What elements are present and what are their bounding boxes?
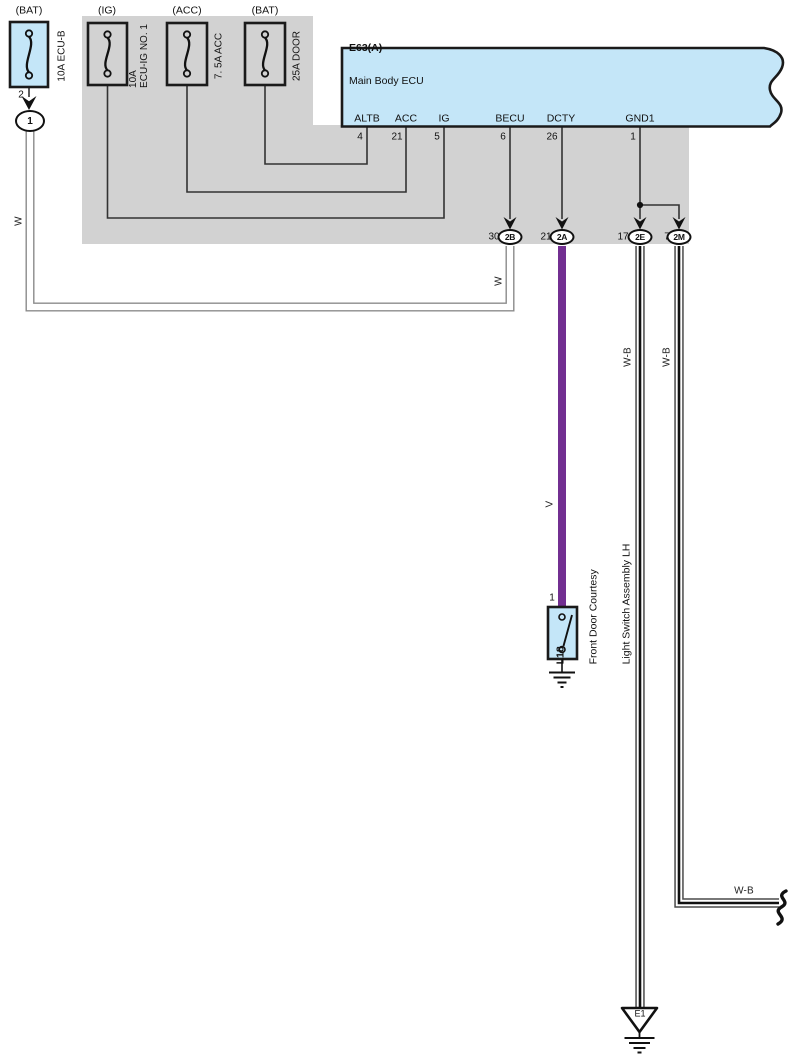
ecu-pin-gnd1: GND1 [625,114,654,125]
ecu-pin-becu-num: 6 [500,132,506,143]
ecu-pin-acc: ACC [395,114,417,125]
fuse-acc [167,23,207,85]
wire-wb-bottom-label: W-B [734,886,754,897]
fuse-ecu-b-source-label: (BAT) [16,6,43,17]
fuse-ecu-ig [88,23,127,85]
ecu-pin-ig-num: 5 [434,132,440,143]
fuse-ecu-ig-name-line2: ECU-IG NO. 1 [139,24,150,88]
wiring-diagram: (BAT) (IG) (ACC) (BAT) 10A ECU-B 10AECU-… [0,0,795,1063]
switch-code: L18 [556,544,567,665]
wiring-artwork [0,0,795,1063]
wire-wb-2e-label: W-B [623,347,634,367]
switch-name-block: L18 Front Door Courtesy Light Switch Ass… [534,544,655,665]
wire-wb-2m-label: W-B [662,347,673,367]
ecu-pin-altb-num: 4 [357,132,363,143]
connector-2b-label: 2B [505,232,515,242]
fuse-ecu-ig-source-label: (IG) [98,6,116,17]
wire-w-left-label: W [14,216,25,226]
fuse-door-source-label: (BAT) [252,6,279,17]
ecu-pin-dcty-num: 26 [546,132,557,143]
junction-dot [637,202,643,208]
connector-2a-label: 2A [557,232,567,242]
connector-1-label: 1 [27,116,33,127]
ecu-code: E63(A) [349,43,424,54]
connector-2e-label: 2E [635,232,645,242]
ecu-name: Main Body ECU [349,76,424,87]
fuse-acc-name: 7. 5A ACC [214,33,225,79]
switch-name-line2: Light Switch Assembly LH [622,544,633,665]
wire-wb-2m [679,246,779,903]
switch-name-line1: Front Door Courtesy [589,544,600,665]
ground-code: E1 [634,1009,645,1020]
ecu-pin-gnd1-num: 1 [630,132,636,143]
fuse-door-name: 25A DOOR [292,31,303,81]
wire-break-symbol [778,891,786,924]
fuse-ecu-b-name: 10A ECU-B [57,30,68,81]
fuse-door [245,23,285,85]
wire-v-label: V [545,501,556,508]
ecu-pin-acc-num: 21 [391,132,402,143]
ecu-pin-dcty: DCTY [547,114,576,125]
fuse-ecu-b-pin-num: 2 [18,90,24,101]
wire-w-right-label: W [494,276,505,286]
connector-2e-oval: 2E [628,229,653,245]
fuse-ecu-b [10,22,48,87]
ecu-pin-becu: BECU [495,114,524,125]
connector-1-oval: 1 [15,110,45,132]
fuse-acc-source-label: (ACC) [172,6,201,17]
ecu-title: E63(A) Main Body ECU [349,21,424,109]
connector-2m-label: 2M [673,232,684,242]
connector-2a-oval: 2A [550,229,575,245]
connector-2b-oval: 2B [498,229,523,245]
ecu-pin-ig: IG [438,114,449,125]
ecu-pin-altb: ALTB [354,114,379,125]
connector-2m-oval: 2M [667,229,692,245]
fuse-ecu-ig-name-line1: 10A [128,24,139,88]
fuse-ecu-ig-name: 10AECU-IG NO. 1 [128,24,150,88]
